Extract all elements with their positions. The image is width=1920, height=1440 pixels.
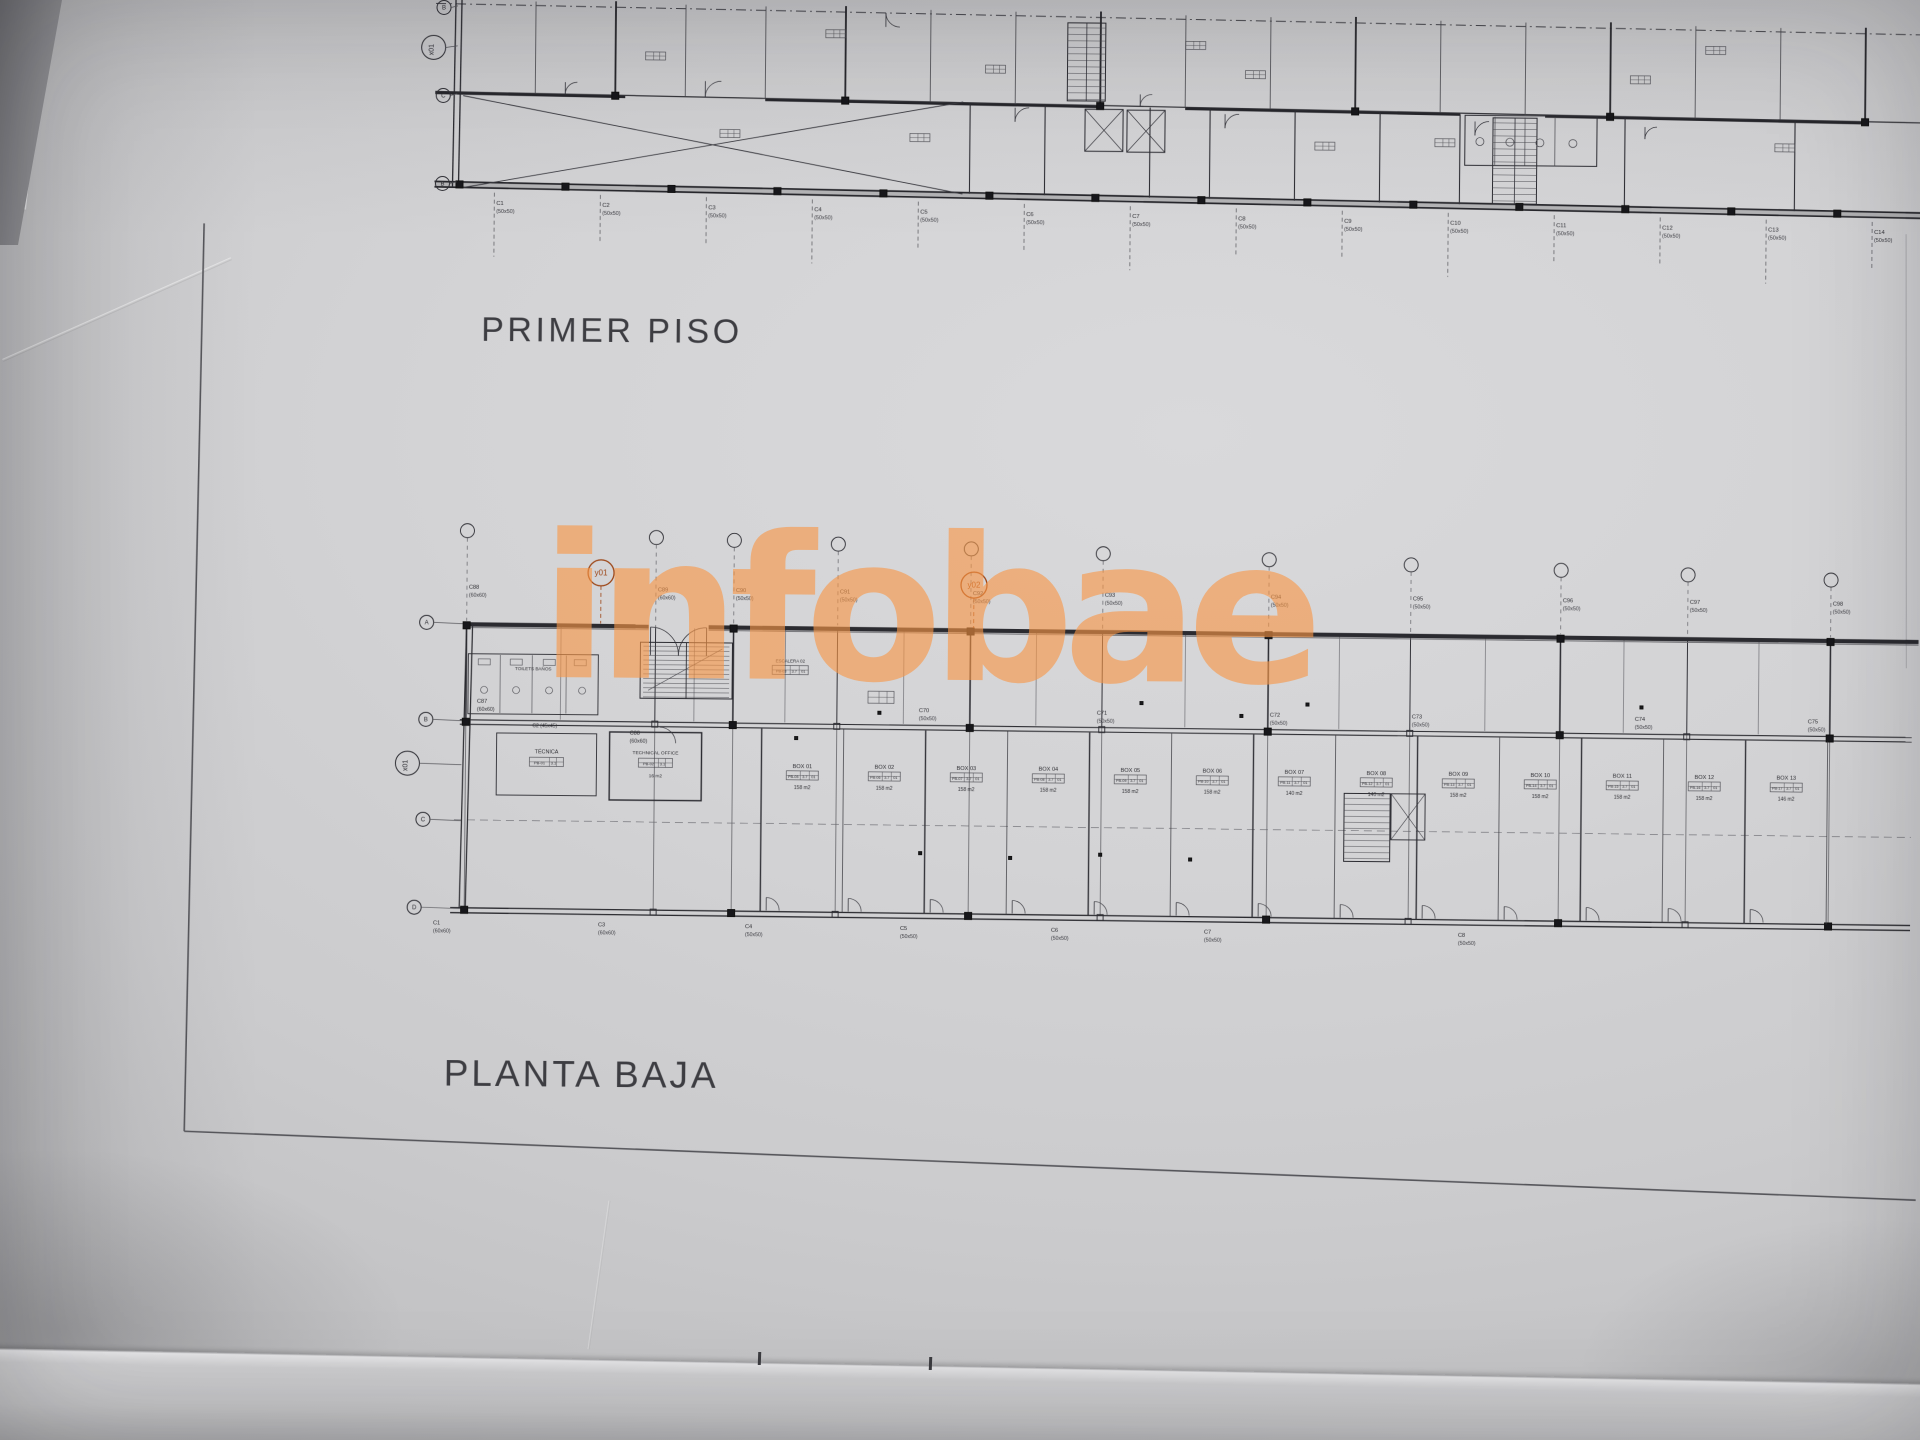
column-label: C73 — [1412, 714, 1422, 720]
column-size-label: (50x50) — [1238, 224, 1257, 230]
box-unit: 01 — [1549, 784, 1553, 788]
box-code: PB-17 — [1772, 787, 1783, 791]
column-label: C74 — [1635, 717, 1645, 723]
box-unit: 01 — [893, 776, 897, 780]
box-area: 158 m2 — [1122, 789, 1139, 795]
box-value: 3.7 — [1130, 779, 1135, 783]
box-unit: 01 — [1795, 787, 1799, 791]
box-name: BOX 05 — [1121, 768, 1141, 774]
grid-bubble — [460, 524, 474, 538]
grid-bubble-label: x01 — [402, 760, 409, 771]
column-label: C1 — [496, 201, 503, 207]
grid-bubble-label: C — [421, 817, 426, 823]
box-code: PB-15 — [1608, 785, 1619, 789]
box-area: 140 m2 — [1286, 791, 1303, 797]
box-unit: 01 — [1631, 785, 1635, 789]
box-unit: 01 — [1057, 778, 1061, 782]
grid-bubble — [1404, 558, 1418, 572]
column-size-label: (50x50) — [1204, 938, 1222, 944]
top-plan-primer-piso: Bx01CBC1(50x50)C2(50x50)C3(50x50)C4(50x5… — [420, 0, 1920, 285]
grid-bubble — [1681, 568, 1695, 582]
grid-bubble-label: C — [441, 94, 446, 100]
box-area: 158 m2 — [1450, 793, 1467, 799]
column-label: C9 — [1344, 219, 1351, 225]
grid-bubble-label: x01 — [429, 44, 436, 55]
column-label: C8 — [1458, 933, 1465, 939]
column-label: C2 — [602, 203, 609, 209]
column-size-label: (50x50) — [1874, 238, 1893, 244]
column-size-label: (50x50) — [1833, 610, 1851, 616]
box-unit: 01 — [1303, 781, 1307, 785]
column-size-label: (50x50) — [1556, 231, 1575, 237]
room-value: 3.1 — [660, 761, 666, 766]
column-label: C95 — [1413, 596, 1423, 602]
box-code: PB-16 — [1690, 786, 1701, 790]
column-label: C8 — [1238, 216, 1245, 222]
column-label: C13 — [1768, 228, 1779, 234]
box-unit: 01 — [975, 777, 979, 781]
box-name: BOX 02 — [875, 765, 895, 771]
box-code: PB-06 — [870, 776, 881, 780]
box-name: BOX 01 — [793, 764, 813, 770]
box-value: 3.7 — [1540, 784, 1545, 788]
box-area: 158 m2 — [1696, 796, 1713, 802]
infobae-watermark: infobae — [539, 509, 1390, 715]
room-code: PB-01 — [534, 760, 546, 765]
column-size-label: (50x50) — [1563, 606, 1581, 612]
column-label: C4 — [745, 924, 752, 930]
box-value: 3.7 — [884, 776, 889, 780]
column-label: C98 — [1833, 602, 1843, 608]
grid-bubble-label: B — [424, 718, 428, 724]
box-code: PB-13 — [1444, 783, 1455, 787]
box-value: 3.7 — [1212, 780, 1217, 784]
column-label: C3 — [598, 922, 605, 928]
column-label: C88 — [469, 585, 479, 591]
box-code: PB-09 — [1116, 779, 1127, 783]
box-name: BOX 03 — [957, 766, 977, 772]
grid-bubble-label: B — [442, 6, 446, 12]
box-name: BOX 06 — [1203, 769, 1223, 775]
box-value: 3.7 — [1048, 778, 1053, 782]
box-name: BOX 07 — [1285, 770, 1305, 776]
column-size-label: (50x50) — [1026, 220, 1045, 226]
box-area: 158 m2 — [1040, 788, 1057, 794]
box-unit: 01 — [1713, 786, 1717, 790]
column-size-label: (50x50) — [1635, 725, 1653, 731]
column-size-label: (50x50) — [708, 213, 727, 219]
box-area: 158 m2 — [876, 786, 893, 792]
box-value: 3.7 — [1622, 785, 1627, 789]
box-name: BOX 08 — [1367, 771, 1387, 777]
grid-bubble — [1824, 573, 1838, 587]
pencil-tick — [758, 1352, 761, 1365]
column-size-label: (50x50) — [1458, 941, 1476, 947]
box-area: 146 m2 — [1778, 797, 1795, 803]
box-code: PB-12 — [1362, 782, 1373, 786]
box-code: PB-14 — [1526, 784, 1537, 788]
column-label: C6 — [1026, 212, 1033, 218]
column-label: C3 — [708, 205, 715, 211]
column-label: C11 — [1556, 223, 1566, 229]
column-size-label: (50x50) — [745, 932, 763, 938]
column-label: C97 — [1690, 600, 1700, 606]
box-unit: 01 — [811, 775, 815, 779]
box-unit: 01 — [1467, 783, 1471, 787]
box-name: BOX 09 — [1449, 772, 1469, 778]
column-size-label: (50x50) — [1412, 722, 1430, 728]
box-name: BOX 10 — [1531, 773, 1551, 779]
room-code: PB-02 — [643, 761, 655, 766]
column-size-label: (50x50) — [900, 934, 918, 940]
room-label: TÉCNICA — [535, 748, 559, 755]
column-label: C5 — [900, 926, 907, 932]
column-size-label: (50x50) — [602, 211, 621, 217]
box-value: 3.7 — [966, 777, 971, 781]
column-label: C88 — [630, 731, 640, 737]
box-area: 158 m2 — [1204, 790, 1221, 796]
grid-bubble-label: A — [425, 621, 429, 627]
column-size-label: (60x60) — [469, 593, 487, 599]
column-size-label: (50x50) — [920, 218, 939, 224]
box-value: 3.7 — [1786, 787, 1791, 791]
column-label: C6 — [1051, 928, 1058, 934]
column-size-label: (60x60) — [598, 930, 616, 936]
column-size-label: (50x50) — [1808, 727, 1826, 733]
column-size-label: (60x60) — [433, 928, 451, 934]
column-size-label: (60x60) — [477, 707, 495, 713]
box-unit: 01 — [1139, 779, 1143, 783]
column-size-label: (50x50) — [1768, 236, 1787, 242]
column-label: C10 — [1450, 221, 1461, 227]
planta-baja-title: PLANTA BAJA — [444, 1053, 719, 1096]
box-area: 158 m2 — [1532, 794, 1549, 800]
box-area: 158 m2 — [794, 785, 811, 791]
box-unit: 01 — [1221, 780, 1225, 784]
column-size-label: (50x50) — [1132, 222, 1151, 228]
grid-bubble-label: D — [412, 905, 417, 911]
box-area: 158 m2 — [958, 787, 975, 793]
room-area: 16 m2 — [649, 773, 663, 779]
box-value: 3.7 — [1376, 782, 1381, 786]
column-size-label: (50x50) — [1662, 233, 1681, 239]
box-code: PB-07 — [952, 777, 963, 781]
column-label: C7 — [1132, 214, 1139, 220]
column-size-label: (50x50) — [1450, 229, 1469, 235]
column-label: C87 — [477, 699, 487, 705]
column-label: C1 — [433, 920, 440, 926]
column-size-label: (50x50) — [1051, 936, 1069, 942]
box-name: BOX 13 — [1777, 776, 1797, 782]
column-size-label: (50x50) — [814, 215, 833, 221]
box-name: BOX 04 — [1039, 767, 1059, 773]
box-value: 3.7 — [1294, 781, 1299, 785]
photo-of-blueprint: Bx01CBC1(50x50)C2(50x50)C3(50x50)C4(50x5… — [0, 0, 1920, 1440]
box-area: 158 m2 — [1614, 795, 1631, 801]
box-value: 3.7 — [802, 775, 807, 779]
column-size-label: (50x50) — [496, 209, 515, 215]
box-code: PB-10 — [1198, 780, 1209, 784]
box-name: BOX 11 — [1613, 774, 1632, 780]
box-value: 3.7 — [1704, 786, 1709, 790]
box-code: PB-08 — [1034, 778, 1045, 782]
box-unit: 01 — [1385, 782, 1389, 786]
pencil-tick — [929, 1357, 932, 1370]
grid-bubble-label: B — [440, 182, 444, 188]
column-label: C5 — [920, 210, 927, 216]
room-value: 3.1 — [551, 760, 557, 765]
grid-bubble — [1554, 563, 1568, 577]
column-label: C96 — [1563, 598, 1573, 604]
primer-piso-title: PRIMER PISO — [481, 311, 743, 351]
box-name: BOX 12 — [1695, 775, 1715, 781]
column-size-label: (60x60) — [630, 739, 648, 745]
column-label: C7 — [1204, 930, 1211, 936]
box-code: PB-11 — [1280, 781, 1290, 785]
box-code: PB-05 — [788, 775, 799, 779]
column-label: C12 — [1662, 225, 1673, 231]
column-label: C14 — [1874, 230, 1885, 236]
column-size-label: (50x50) — [1690, 608, 1708, 614]
box-area: 140 m2 — [1368, 792, 1385, 798]
column-size-label: (50x50) — [1413, 604, 1431, 610]
room-label: TECHNICAL OFFICE — [633, 750, 679, 756]
column-label: C75 — [1808, 719, 1818, 725]
column-size-label: (50x50) — [1344, 227, 1363, 233]
column-label: C4 — [814, 207, 822, 213]
box-value: 3.7 — [1458, 783, 1463, 787]
